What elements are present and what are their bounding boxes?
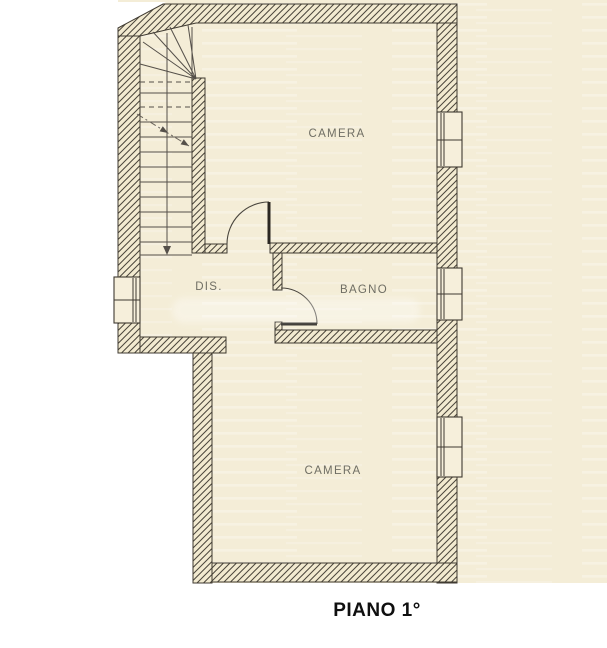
wall-camera-bagno bbox=[270, 243, 437, 253]
watermark bbox=[172, 298, 420, 323]
floor-title: PIANO 1° bbox=[333, 600, 421, 621]
room-label-camera-lower: CAMERA bbox=[304, 465, 361, 477]
wall-lower-left bbox=[193, 353, 212, 583]
wall-stair-side bbox=[192, 78, 205, 253]
wall-door-stub bbox=[205, 244, 227, 253]
window-camera-upper bbox=[437, 112, 462, 167]
room-label-camera-upper: CAMERA bbox=[308, 128, 365, 140]
floor-plan-drawing: CAMERA DIS. BAGNO CAMERA PIANO 1° bbox=[0, 0, 607, 648]
window-bagno bbox=[437, 268, 462, 320]
window-dis bbox=[114, 277, 140, 323]
room-label-bagno: BAGNO bbox=[340, 284, 388, 296]
wall-dis-bottom bbox=[140, 337, 226, 353]
wall-bagno-bottom bbox=[275, 330, 437, 343]
floor-plan-page: CAMERA DIS. BAGNO CAMERA PIANO 1° bbox=[0, 0, 607, 648]
window-camera-lower bbox=[437, 417, 462, 477]
wall-dis-bagno bbox=[273, 253, 282, 290]
wall-bottom bbox=[193, 563, 457, 582]
room-label-dis: DIS. bbox=[195, 281, 223, 293]
